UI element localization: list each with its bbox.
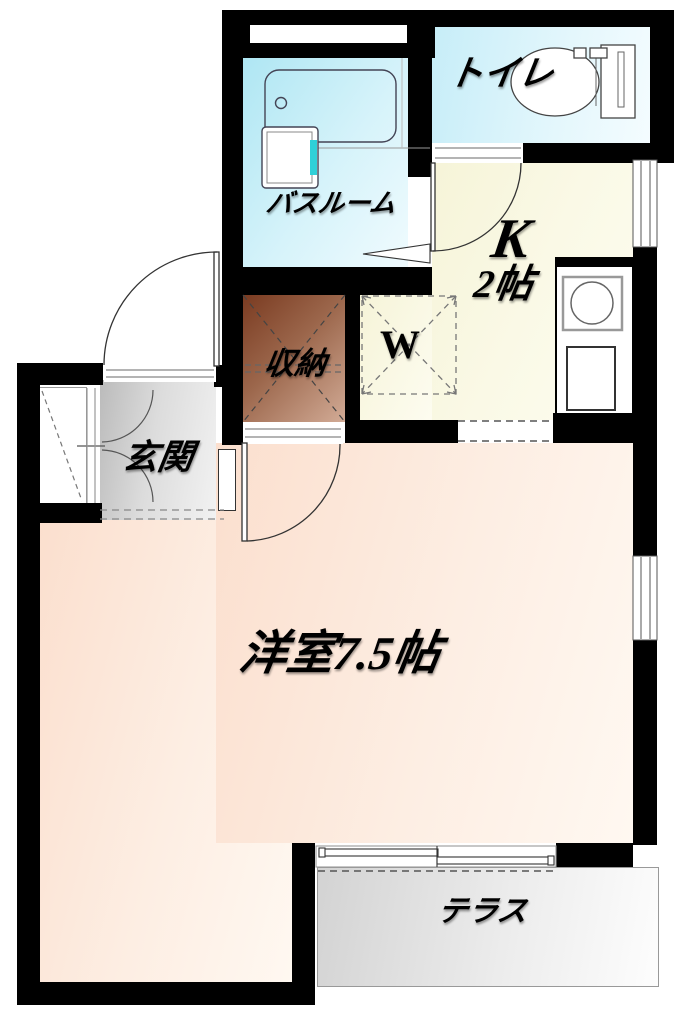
terrace-sliding-door	[316, 846, 556, 867]
main-room-window	[633, 556, 657, 640]
bathroom-door	[363, 244, 430, 263]
kitchen-opening-dashes	[458, 421, 553, 441]
kitchen-unit	[556, 258, 633, 414]
kitchen-size: 2帖	[440, 265, 566, 306]
closet-label: 収納	[242, 348, 347, 381]
washbasin	[262, 127, 318, 188]
western-room-label: 洋室7.5帖	[151, 630, 529, 679]
front-door-swing	[104, 252, 219, 377]
kitchen-label: K 2帖	[440, 210, 575, 306]
closet-door-swing	[242, 429, 341, 541]
entrance-label: 玄関	[105, 440, 211, 477]
entrance-step-lines	[100, 510, 224, 519]
bathroom-label: バスルーム	[254, 190, 408, 217]
floor-plan: トイレ バスルーム K 2帖 W 収納 玄関 洋室7.5帖 テラス	[0, 0, 674, 1024]
kitchen-window	[633, 160, 657, 247]
washer-label: W	[370, 324, 430, 366]
kitchen-letter: K	[487, 208, 534, 270]
fixture-linework	[0, 0, 674, 1024]
toilet-label: トイレ	[433, 56, 569, 93]
terrace-label: テラス	[398, 896, 568, 928]
